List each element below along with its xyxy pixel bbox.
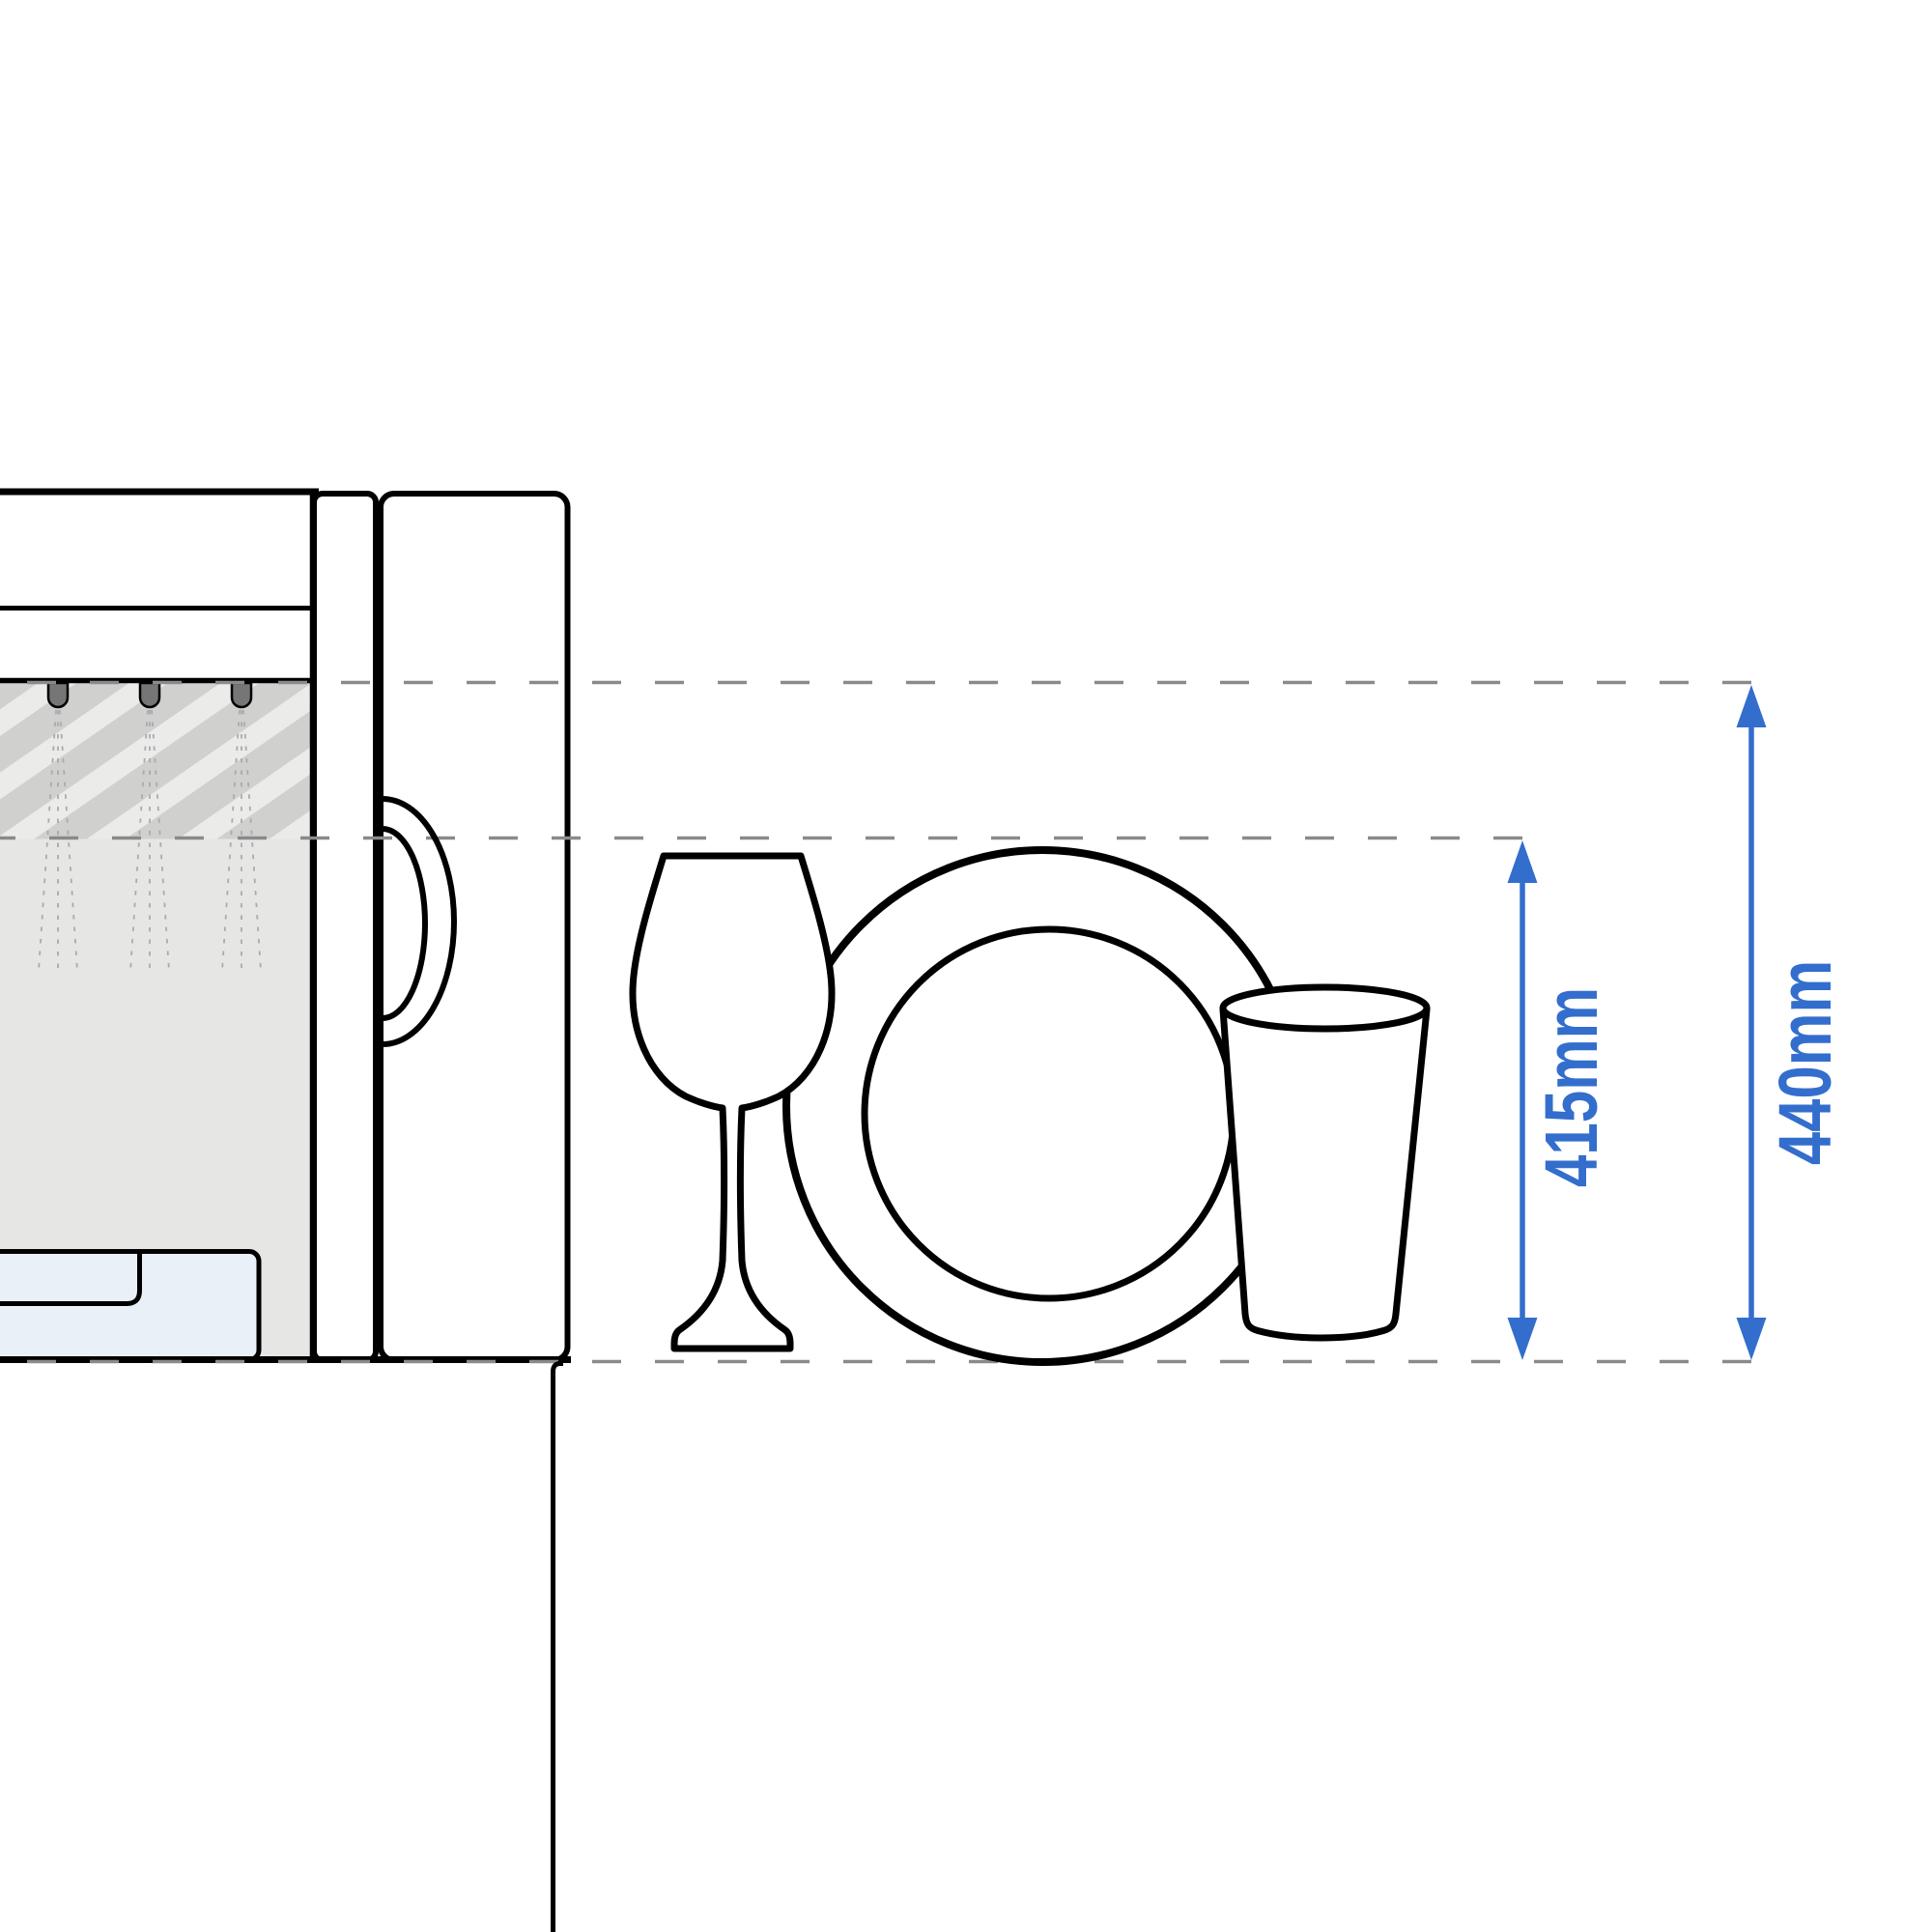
svg-text:415mm: 415mm xyxy=(1529,987,1613,1187)
svg-text:440mm: 440mm xyxy=(1763,960,1846,1165)
